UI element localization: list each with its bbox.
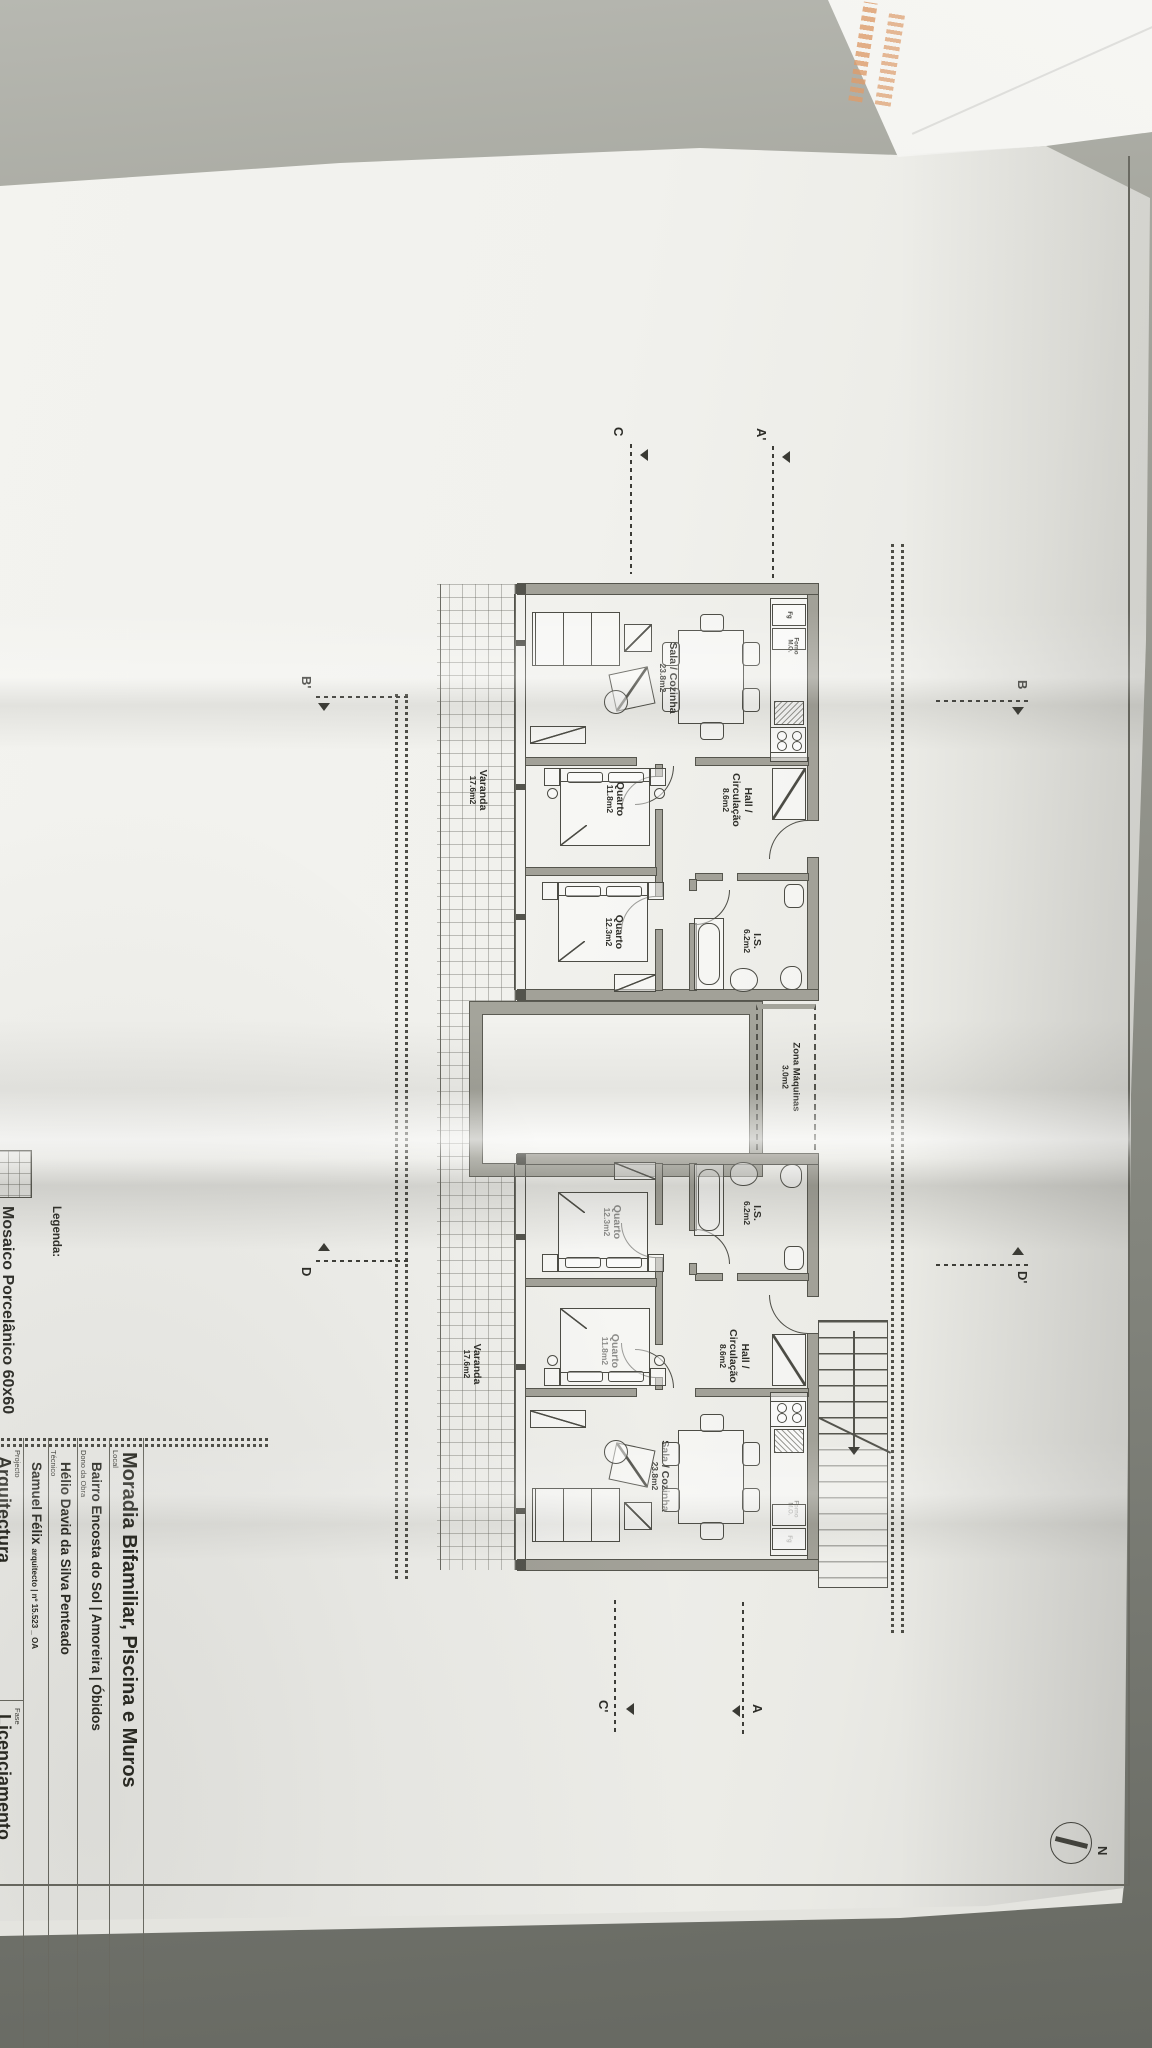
sink-symbol [774,701,804,725]
central-patio [470,1002,762,1176]
section-arrow-icon [1012,707,1024,715]
wall [696,1274,722,1280]
section-marker-d-prime: D' [1015,1271,1030,1283]
field-label-tecnico: Técnico [49,1450,58,1476]
fridge-label-left: Fg [786,611,792,618]
nightstand-symbol [542,1254,558,1272]
site-wall-garden-outer [405,694,408,1582]
wall [738,874,808,880]
sink-symbol [774,1429,804,1453]
oven-label-left: FornoM.O. [786,638,799,655]
wall [518,584,818,594]
wardrobe-symbol [614,974,656,992]
section-line-b-bottom [314,696,408,698]
oven-symbol [772,1504,806,1526]
section-arrow-icon [318,1243,330,1251]
bathtub-symbol [694,918,724,990]
site-wall-garden-inner [395,694,398,1582]
field-value-projecto: Arquitectura [0,1456,14,1563]
room-label-quarto1-left: Quarto11.8m2 [604,782,626,816]
washbasin-symbol [784,884,804,908]
wall [808,584,818,820]
section-arrow-icon [732,1705,740,1717]
section-arrow-icon [318,703,330,711]
field-label-dono: Dono da Obra [79,1450,88,1497]
chair-symbol [700,1522,724,1540]
wardrobe-symbol [614,1162,656,1180]
room-label-hall-left: Hall /Circulação8.6m2 [720,773,754,827]
legend-tile-swatch-icon [0,1150,32,1198]
section-marker-b: B [1015,680,1030,689]
chair-symbol [700,614,724,632]
wall [690,1264,696,1274]
wall [518,1560,818,1570]
wall [518,1154,818,1164]
bidet-symbol [780,1164,802,1188]
legend-item-label: Mosaico Porcelânico 60x60 [0,1206,16,1414]
wall [656,1164,662,1224]
wall [526,758,636,765]
nightstand-symbol [544,1368,560,1386]
field-value-dono: Hélio David da Silva Penteado [58,1462,73,1655]
field-label-projecto: Projecto [13,1450,22,1478]
closet-symbol [772,1334,806,1386]
unit-right-geometry [434,1154,818,1570]
wall [808,1334,818,1570]
lamp-symbol [547,788,558,799]
entry-door-arc [769,820,808,859]
site-wall-street-inner [891,544,894,1634]
sideboard-symbol [530,726,586,744]
section-marker-c-prime: C' [596,1700,611,1712]
room-label-is-left: I.S.6.2m2 [741,929,763,953]
wall [526,1279,656,1286]
nightstand-symbol [650,768,666,786]
wall [808,858,818,1000]
room-label-varanda-left: Varanda17.6m2 [467,770,489,811]
chair-symbol [742,1442,760,1466]
architectural-drawing: Sala / Cozinha23.8m2 Hall /Circulação8.6… [0,0,1152,2048]
north-arrow-icon [1050,1822,1092,1864]
section-line-a-right [742,1602,744,1738]
bathtub-symbol [694,1164,724,1236]
bed-symbol [558,1192,648,1272]
chair-symbol [742,688,760,712]
bidet-symbol [780,966,802,990]
stairs-direction-line [853,1331,855,1449]
nightstand-symbol [542,882,558,900]
section-arrow-icon [626,1703,634,1715]
window-wall [514,594,526,990]
wall [518,990,818,1000]
section-line-c-right [614,1600,616,1736]
section-marker-a: A [750,1704,765,1713]
lamp-symbol [654,788,665,799]
nightstand-symbol [544,768,560,786]
closet-symbol [772,768,806,820]
armchair-symbol [624,624,652,652]
round-table-symbol [604,1440,628,1464]
washbasin-symbol [784,1246,804,1270]
nightstand-symbol [648,882,664,900]
stove-symbol [770,1401,806,1427]
exterior-stairs [818,1320,888,1588]
site-wall-street-outer [901,544,904,1634]
title-block-border [0,1444,268,1447]
section-marker-a-prime: A' [754,428,769,440]
field-value-tecnico: Samuel Félix arquitecto | nº 15.523 _ OA [29,1462,44,1649]
section-line-a-left [772,446,774,578]
room-label-zona-maquinas: Zona Máquinas3.0m2 [780,1042,801,1111]
room-label-sala-left: Sala / Cozinha23.8m2 [657,642,679,713]
wall [808,1154,818,1296]
section-line-b-top [936,700,1028,702]
field-value-local: Bairro Encosta do Sol | Amoreira | Óbido… [89,1462,104,1731]
nightstand-symbol [650,1368,666,1386]
room-label-quarto2-left: Quarto12.3m2 [603,915,625,949]
wall [526,868,656,875]
dining-table-symbol [678,630,744,724]
drawing-frame-top [1128,156,1130,1886]
wall [696,874,722,880]
toilet-symbol [730,1162,758,1186]
photographed-floor-plan-scene: { "photo": { "desk_color_top": "#b7b8b1"… [0,0,1152,2048]
legend-heading: Legenda: [50,1206,62,1257]
chair-symbol [700,1414,724,1432]
bed-symbol [560,1308,650,1386]
section-marker-d: D [299,1267,314,1276]
lamp-symbol [547,1355,558,1366]
chair-symbol [700,722,724,740]
nightstand-symbol [648,1254,664,1272]
wall [656,930,662,990]
round-table-symbol [604,690,628,714]
sofa-symbol [532,612,620,666]
toilet-symbol [730,968,758,992]
section-line-d-bottom [314,1260,408,1262]
section-line-d-top [936,1264,1028,1266]
entry-door-arc [769,1295,808,1334]
section-arrow-icon [640,449,648,461]
armchair-symbol [624,1502,652,1530]
title-block-border [0,1438,268,1441]
stairs-arrow-icon [848,1447,860,1455]
wall [526,1389,636,1396]
window-wall [514,1164,526,1560]
fridge-symbol [772,1528,806,1550]
chair-symbol [662,1488,680,1512]
north-label: N [1095,1846,1110,1855]
lamp-symbol [654,1355,665,1366]
stove-symbol [770,727,806,753]
wall [690,880,696,890]
section-marker-b-prime: B' [299,676,314,688]
section-arrow-icon [1012,1247,1024,1255]
sofa-symbol [532,1488,620,1542]
chair-symbol [742,642,760,666]
wall [738,1274,808,1280]
field-label-fase: Fase [13,1708,22,1725]
field-value-fase: Licenciamento [0,1714,14,1840]
section-line-c-left [630,444,632,574]
dining-table-symbol [678,1430,744,1524]
chair-symbol [742,1488,760,1512]
section-arrow-icon [782,451,790,463]
chair-symbol [662,1442,680,1466]
field-label-local: Local [111,1450,120,1468]
drawing-frame-right [0,1884,1130,1886]
section-marker-c: C [611,427,626,436]
sideboard-symbol [530,1410,586,1428]
project-title: Moradia Bifamiliar, Piscina e Muros [117,1452,140,1788]
